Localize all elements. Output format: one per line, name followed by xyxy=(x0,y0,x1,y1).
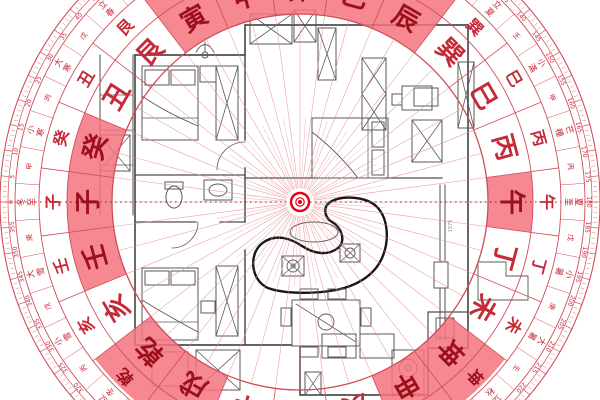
degree-label-180: 180 xyxy=(585,196,592,208)
degree-label-355: 355 xyxy=(9,221,17,233)
mountain-inner-子: 子 xyxy=(74,189,104,215)
degree-label-15: 15 xyxy=(17,123,26,132)
degree-label-185: 185 xyxy=(583,221,591,233)
fine-ring-stem: 壬 xyxy=(511,30,522,41)
degree-label-175: 175 xyxy=(583,171,591,183)
mountain-inner-卯: 卯 xyxy=(287,0,313,6)
degree-label-350: 350 xyxy=(12,246,21,259)
solar-term-芒種: 種 xyxy=(552,127,565,139)
fp-bathroom-left xyxy=(165,180,232,208)
degree-label-35: 35 xyxy=(59,31,69,41)
fine-ring-stem: 甲 xyxy=(25,162,34,170)
fine-ring-stem: 戊 xyxy=(78,30,89,41)
degree-label-25: 25 xyxy=(34,75,44,85)
mountain-inner-午: 午 xyxy=(496,189,527,215)
solar-term-冬至: 冬 xyxy=(16,197,27,206)
solar-term-夏至: 至 xyxy=(563,198,573,207)
mountain-outer-癸: 癸 xyxy=(50,127,73,149)
degree-label-340: 340 xyxy=(24,294,35,307)
mountain-outer-子: 子 xyxy=(44,194,63,210)
screenshot-root: 1575子癸丑艮寅甲卯乙辰巽巳丙午丁未坤申庚酉辛戌乾亥壬子癸丑艮寅甲卯乙辰巽巳丙… xyxy=(0,0,600,400)
fine-ring-stem: 甲 xyxy=(547,93,557,103)
degree-label-220: 220 xyxy=(514,381,527,394)
solar-term-冬至: 至 xyxy=(28,197,38,206)
degree-label-10: 10 xyxy=(12,147,20,156)
mountain-outer-丑: 丑 xyxy=(74,67,98,90)
degree-label-5: 5 xyxy=(9,175,16,180)
degree-label-160: 160 xyxy=(566,97,577,110)
degree-label-200: 200 xyxy=(566,294,577,307)
solar-term-夏至: 夏 xyxy=(573,198,583,207)
mountain-inner-庚: 庚 xyxy=(338,388,371,400)
solar-term-大雪: 雪 xyxy=(36,266,48,277)
mountain-outer-壬: 壬 xyxy=(50,256,72,276)
fine-ring-stem: 戊 xyxy=(566,234,576,242)
center-bullseye-dot xyxy=(298,200,302,204)
fine-ring-stem: 丙 xyxy=(78,363,89,373)
mountain-outer-艮: 艮 xyxy=(113,14,138,39)
mountain-inner-丙: 丙 xyxy=(486,131,522,164)
mountain-inner-艮: 艮 xyxy=(131,32,171,72)
degree-label-320: 320 xyxy=(73,381,86,394)
center-crosshair xyxy=(291,193,309,211)
degree-label-170: 170 xyxy=(579,146,588,159)
mountain-outer-亥: 亥 xyxy=(74,314,98,337)
degree-label-40: 40 xyxy=(74,11,84,21)
degree-label-20: 20 xyxy=(25,98,34,108)
mountain-outer-巽: 巽 xyxy=(462,15,487,40)
fine-ring-stem: 丙 xyxy=(43,93,53,103)
mountain-outer-丁: 丁 xyxy=(527,256,549,276)
mountain-inner-丁: 丁 xyxy=(486,240,522,273)
fine-ring-stem: 壬 xyxy=(511,363,522,374)
solar-term-小寒: 寒 xyxy=(35,127,48,139)
fine-ring-stem: 庚 xyxy=(547,302,558,312)
mountain-outer-未: 未 xyxy=(502,313,527,337)
fine-ring-stem: 丙 xyxy=(566,162,575,170)
mountain-inner-丑: 丑 xyxy=(98,78,137,116)
mountain-outer-丙: 丙 xyxy=(527,128,549,148)
mountain-outer-午: 午 xyxy=(538,194,557,210)
mountain-inner-亥: 亥 xyxy=(97,289,137,327)
luopan-floorplan-svg: 1575子癸丑艮寅甲卯乙辰巽巳丙午丁未坤申庚酉辛戌乾亥壬子癸丑艮寅甲卯乙辰巽巳丙… xyxy=(0,0,600,400)
mountain-outer-巳: 巳 xyxy=(502,67,526,90)
solar-term-小暑: 暑 xyxy=(552,266,564,277)
fine-ring-stem: 戊 xyxy=(42,302,53,312)
degree-label-0: 0 xyxy=(8,200,15,204)
degree-label-190: 190 xyxy=(579,246,588,259)
fine-ring-stem: 庚 xyxy=(24,234,34,242)
degree-label-140: 140 xyxy=(515,10,528,23)
mountain-inner-未: 未 xyxy=(463,289,502,327)
mountain-inner-巽: 巽 xyxy=(429,33,469,73)
